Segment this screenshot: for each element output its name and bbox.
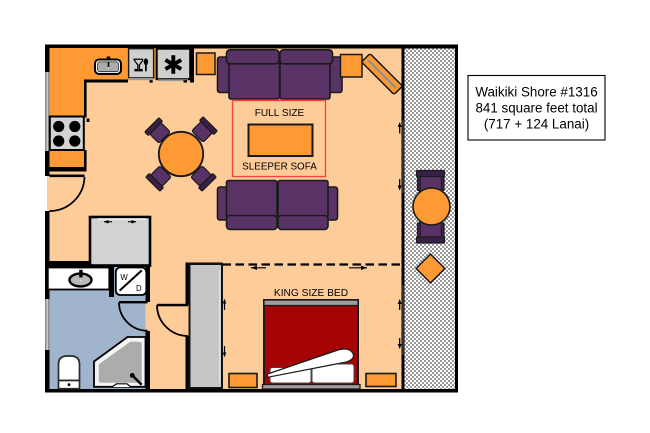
svg-text:FULL SIZE: FULL SIZE (255, 108, 305, 119)
svg-text:W: W (120, 273, 128, 282)
svg-text:841 square feet total: 841 square feet total (475, 100, 597, 115)
svg-text:Waikiki Shore #1316: Waikiki Shore #1316 (475, 84, 597, 99)
svg-text:(717 + 124 Lanai): (717 + 124 Lanai) (484, 117, 589, 132)
svg-text:KING SIZE BED: KING SIZE BED (274, 288, 348, 299)
svg-text:SLEEPER SOFA: SLEEPER SOFA (242, 161, 317, 172)
svg-text:D: D (136, 284, 142, 293)
